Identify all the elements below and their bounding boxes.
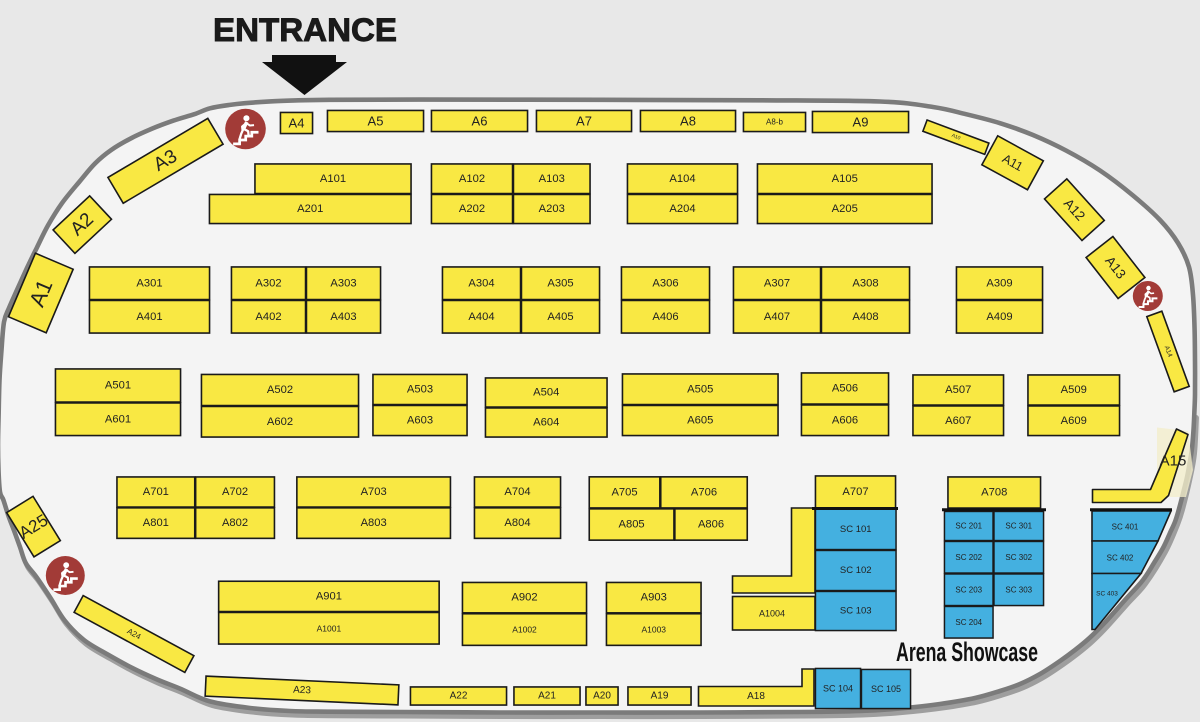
svg-text:A802: A802 [222,517,248,529]
svg-text:A304: A304 [468,277,494,289]
svg-text:SC 202: SC 202 [955,553,982,562]
svg-text:SC 201: SC 201 [955,522,982,531]
svg-text:A19: A19 [651,691,669,702]
svg-text:SC 402: SC 402 [1107,554,1134,563]
svg-text:A702: A702 [222,486,248,498]
svg-text:A902: A902 [511,592,537,604]
svg-text:A202: A202 [459,203,485,215]
svg-text:A607: A607 [945,415,971,427]
svg-text:SC 105: SC 105 [871,684,901,694]
svg-text:A801: A801 [143,517,169,529]
svg-text:SC 101: SC 101 [840,524,872,535]
svg-text:A708: A708 [981,487,1007,499]
svg-text:A504: A504 [533,387,559,399]
svg-text:A404: A404 [468,311,494,323]
svg-text:A302: A302 [255,277,281,289]
svg-text:A603: A603 [407,415,433,427]
svg-text:A105: A105 [832,173,858,185]
svg-text:A6: A6 [472,114,488,129]
svg-text:A9: A9 [853,115,869,130]
svg-text:A805: A805 [619,519,645,531]
svg-text:A503: A503 [407,384,433,396]
svg-text:SC 403: SC 403 [1096,591,1118,598]
svg-text:A307: A307 [764,277,790,289]
svg-text:A402: A402 [255,311,281,323]
svg-text:A306: A306 [652,277,678,289]
svg-text:A509: A509 [1061,384,1087,396]
svg-text:A903: A903 [641,592,667,604]
svg-text:A301: A301 [136,277,162,289]
svg-text:A308: A308 [852,277,878,289]
svg-text:A1004: A1004 [759,609,785,619]
svg-text:SC 302: SC 302 [1005,553,1032,562]
svg-text:A7: A7 [576,114,592,129]
svg-text:A901: A901 [316,590,342,602]
svg-text:A405: A405 [547,311,573,323]
svg-text:A23: A23 [293,685,312,697]
svg-text:A705: A705 [611,486,637,498]
svg-text:A507: A507 [945,384,971,396]
svg-text:A1001: A1001 [317,623,342,633]
svg-text:A502: A502 [267,384,293,396]
svg-text:A309: A309 [986,277,1012,289]
svg-text:Arena Showcase: Arena Showcase [896,637,1038,667]
svg-text:A409: A409 [986,311,1012,323]
svg-text:A505: A505 [687,383,713,395]
svg-text:A18: A18 [747,691,765,702]
svg-text:A501: A501 [105,380,131,392]
svg-text:A407: A407 [764,311,790,323]
svg-text:A4: A4 [289,116,305,131]
svg-text:A21: A21 [538,691,556,702]
svg-text:A203: A203 [539,203,565,215]
svg-text:ENTRANCE: ENTRANCE [213,12,397,48]
svg-text:A506: A506 [832,383,858,395]
svg-text:A5: A5 [368,114,384,129]
svg-text:A806: A806 [698,519,724,531]
svg-text:A401: A401 [136,311,162,323]
svg-text:A15: A15 [1160,453,1187,470]
svg-text:A408: A408 [852,311,878,323]
svg-text:A20: A20 [593,691,611,702]
svg-text:A103: A103 [539,173,565,185]
svg-text:A104: A104 [669,173,695,185]
svg-text:A707: A707 [842,486,868,498]
svg-text:A804: A804 [504,517,530,529]
svg-text:A701: A701 [143,486,169,498]
svg-text:SC 103: SC 103 [840,606,872,617]
svg-text:A604: A604 [533,417,559,429]
svg-text:A403: A403 [330,311,356,323]
svg-text:A606: A606 [832,414,858,426]
svg-text:A605: A605 [687,415,713,427]
svg-text:A305: A305 [547,277,573,289]
svg-text:A8: A8 [680,114,696,129]
svg-text:A602: A602 [267,416,293,428]
svg-text:A205: A205 [832,203,858,215]
svg-text:A22: A22 [450,691,468,702]
svg-text:A8-b: A8-b [766,118,783,127]
svg-text:A406: A406 [652,311,678,323]
svg-text:A201: A201 [297,203,323,215]
svg-text:A101: A101 [320,173,346,185]
svg-text:A601: A601 [105,413,131,425]
svg-text:SC 401: SC 401 [1112,523,1139,532]
svg-text:A204: A204 [669,203,695,215]
svg-text:A803: A803 [361,517,387,529]
svg-text:A102: A102 [459,173,485,185]
svg-text:A706: A706 [691,486,717,498]
svg-text:SC 204: SC 204 [955,618,982,627]
svg-text:A1002: A1002 [512,625,537,635]
svg-text:A703: A703 [361,486,387,498]
svg-text:SC 303: SC 303 [1005,585,1032,594]
svg-text:A303: A303 [330,277,356,289]
svg-text:SC 203: SC 203 [955,585,982,594]
svg-text:A1003: A1003 [641,625,666,635]
svg-text:SC 102: SC 102 [840,565,872,576]
svg-text:SC 301: SC 301 [1005,522,1032,531]
svg-text:SC 104: SC 104 [823,684,853,694]
svg-text:A704: A704 [504,486,530,498]
svg-text:A609: A609 [1061,415,1087,427]
